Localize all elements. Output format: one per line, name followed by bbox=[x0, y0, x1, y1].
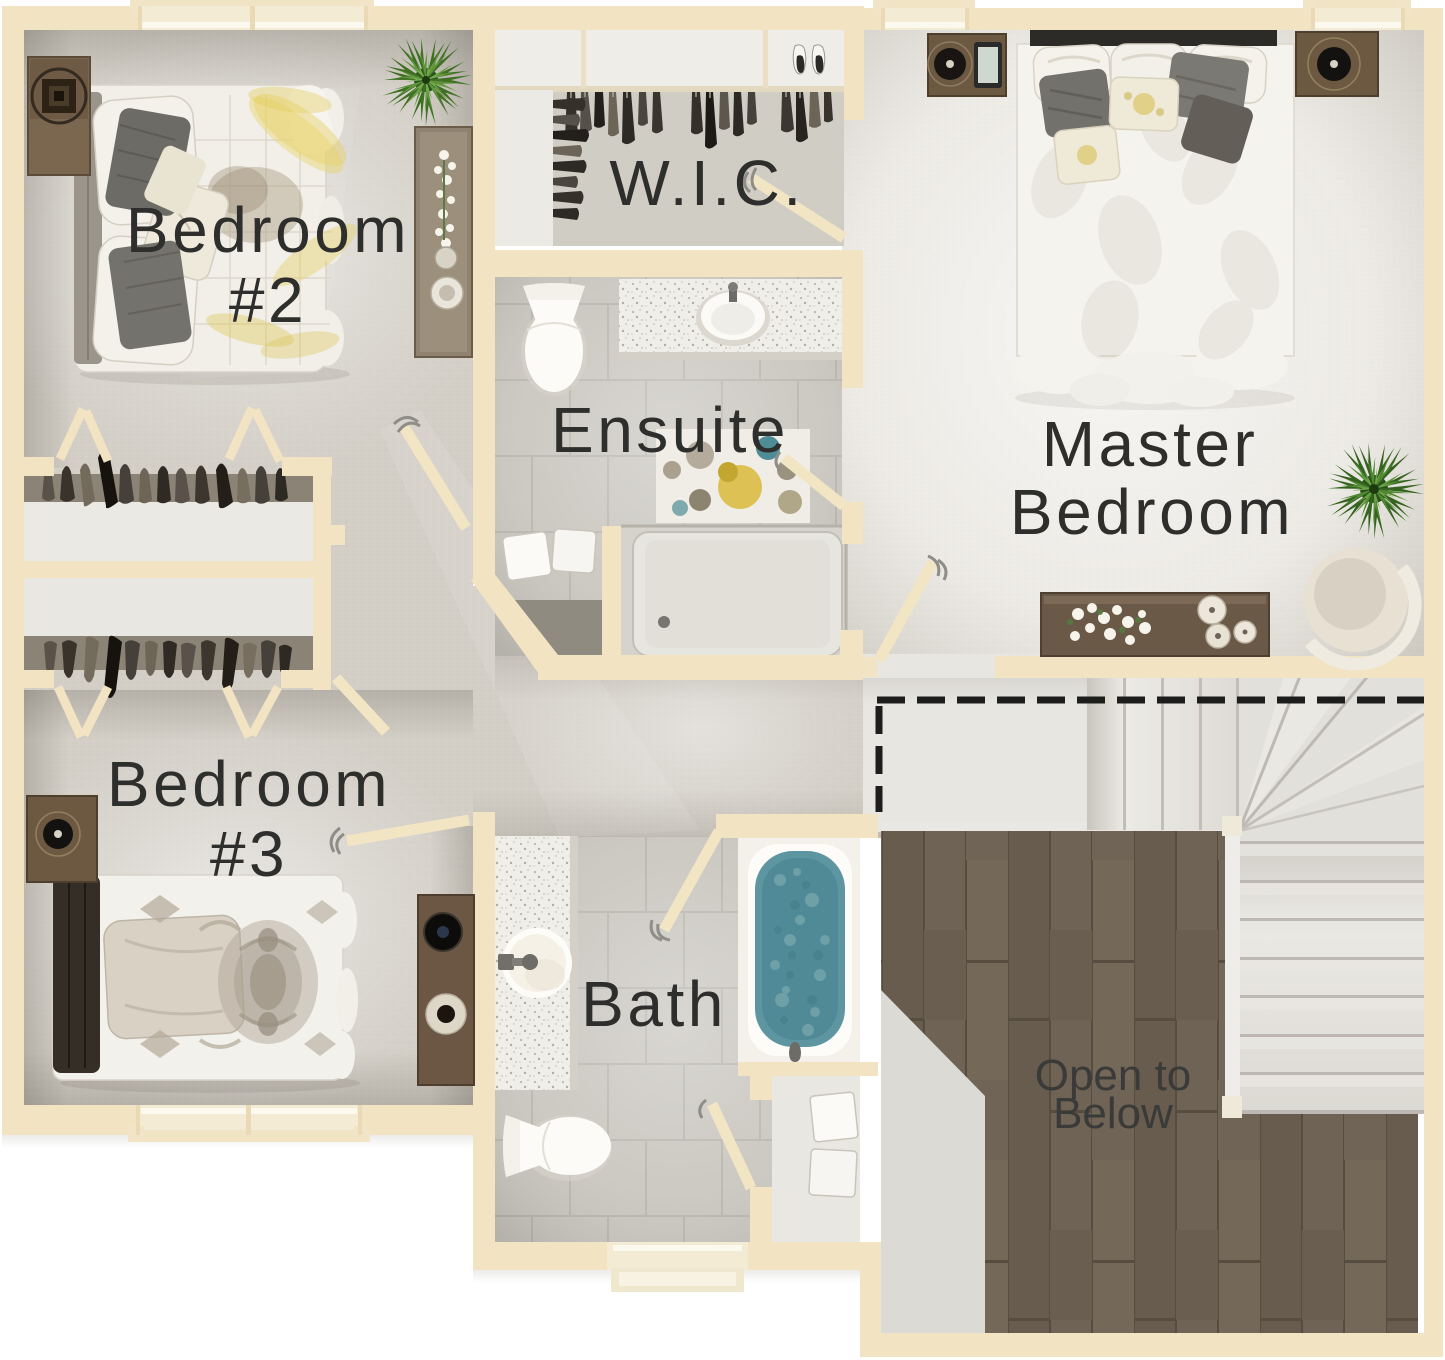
svg-text:#3: #3 bbox=[210, 818, 288, 890]
svg-text:Bedroom: Bedroom bbox=[126, 194, 410, 266]
svg-text:Bedroom: Bedroom bbox=[107, 748, 391, 820]
svg-text:Bath: Bath bbox=[581, 968, 727, 1040]
svg-text:Below: Below bbox=[1053, 1089, 1173, 1138]
svg-text:Master: Master bbox=[1042, 408, 1259, 480]
svg-text:W.I.C.: W.I.C. bbox=[609, 147, 804, 219]
svg-text:Bedroom: Bedroom bbox=[1010, 476, 1294, 548]
svg-text:#2: #2 bbox=[229, 264, 307, 336]
svg-text:Ensuite: Ensuite bbox=[551, 394, 789, 466]
